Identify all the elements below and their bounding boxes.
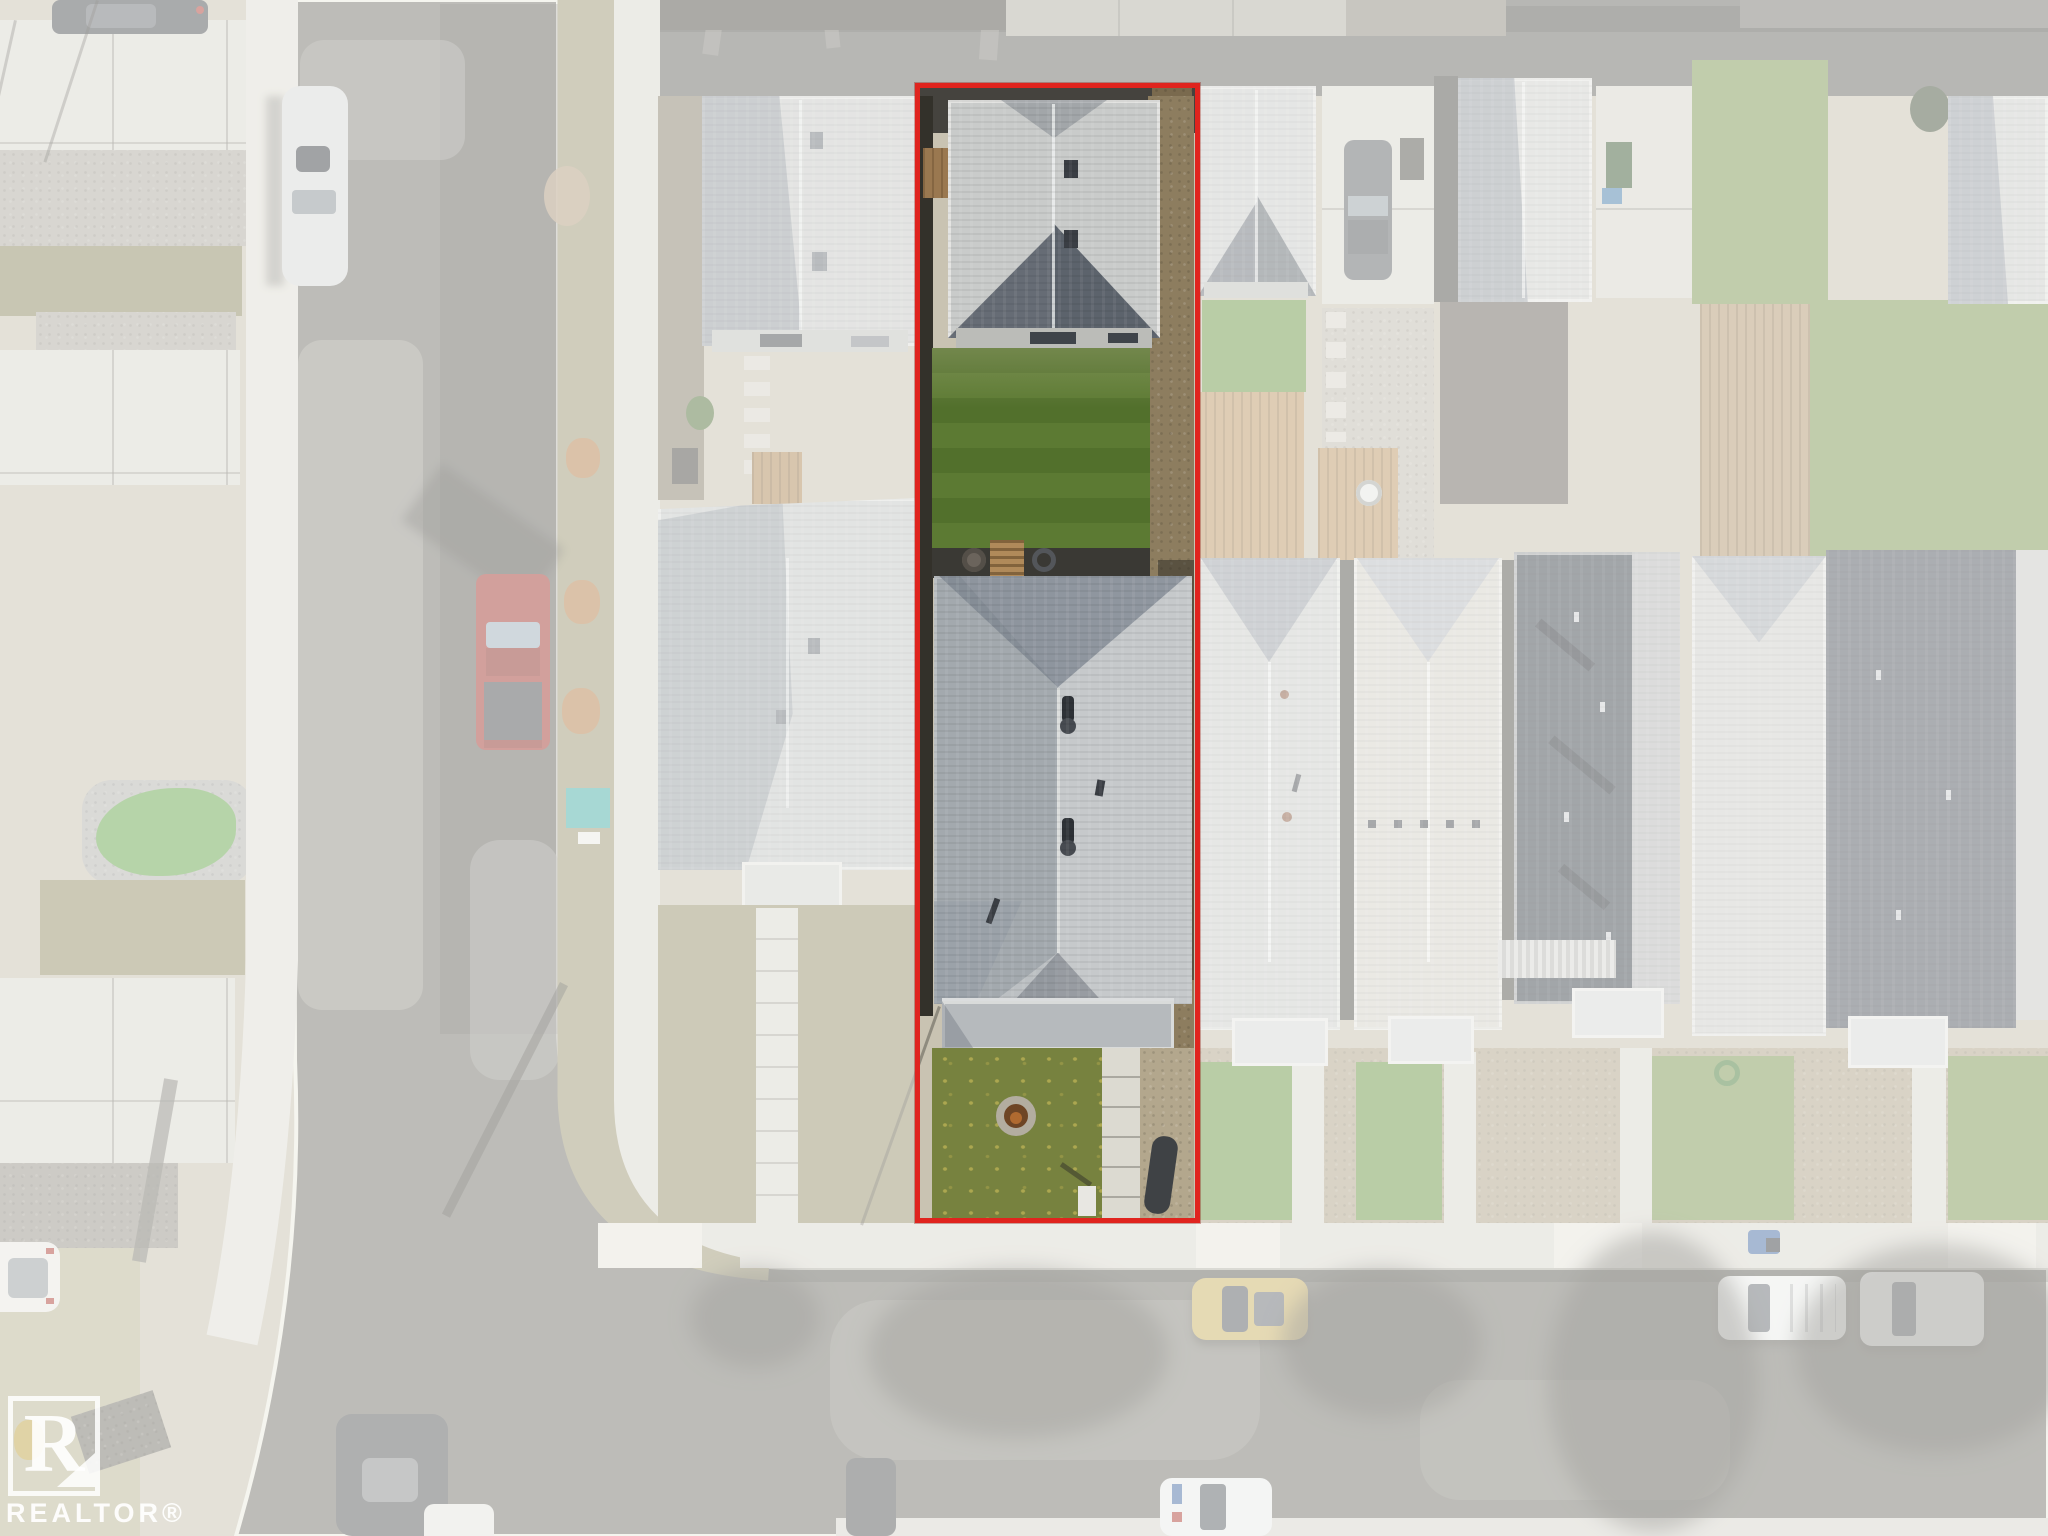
property-boundary-outline — [915, 83, 1200, 1223]
realtor-logo-icon: R — [8, 1396, 100, 1496]
fade-overlay-bottom — [0, 1223, 2048, 1536]
fade-overlay-left — [0, 83, 915, 1223]
aerial-photo: R REALTOR® — [0, 0, 2048, 1536]
realtor-watermark-text: REALTOR® — [6, 1498, 326, 1530]
fade-overlay-right — [1200, 83, 2048, 1223]
fade-overlay-top — [0, 0, 2048, 83]
